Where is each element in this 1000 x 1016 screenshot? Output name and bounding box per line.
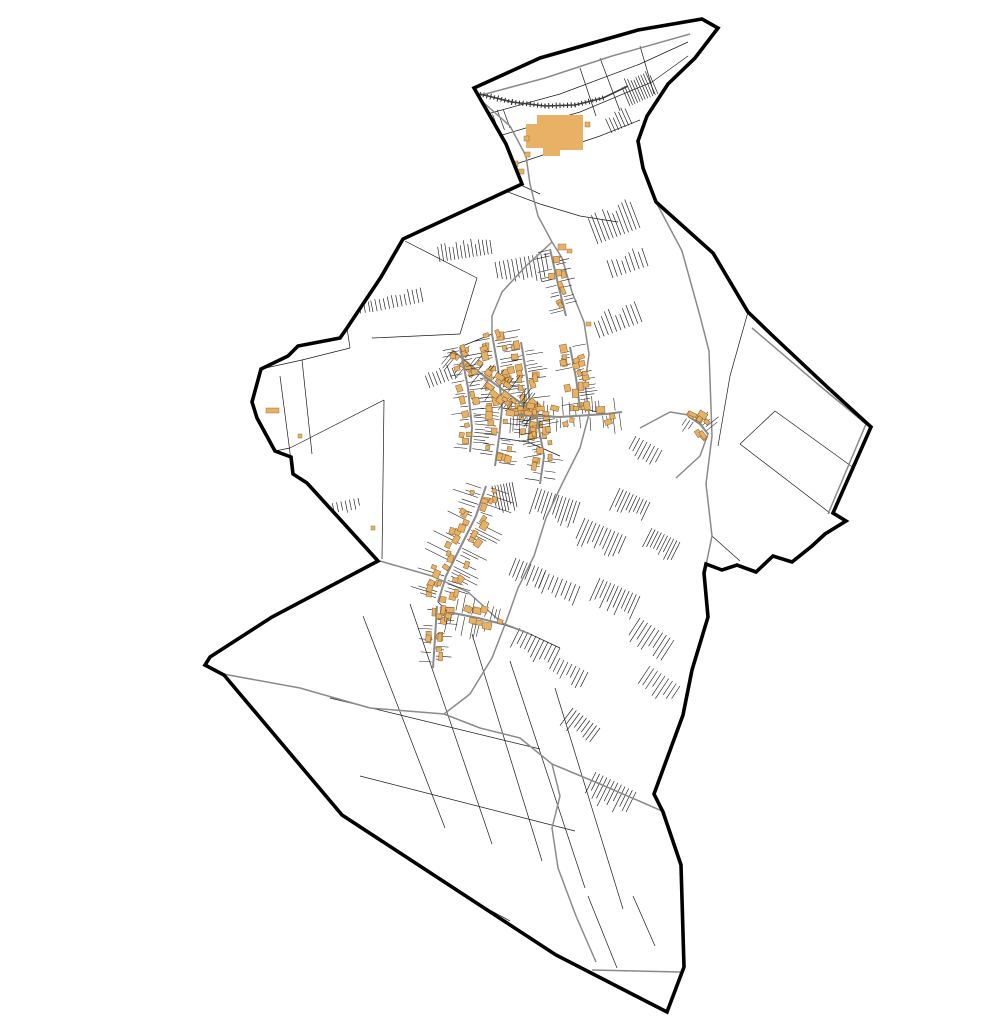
cadastral-map [40,16,1000,1016]
map-figure [40,16,1000,1016]
